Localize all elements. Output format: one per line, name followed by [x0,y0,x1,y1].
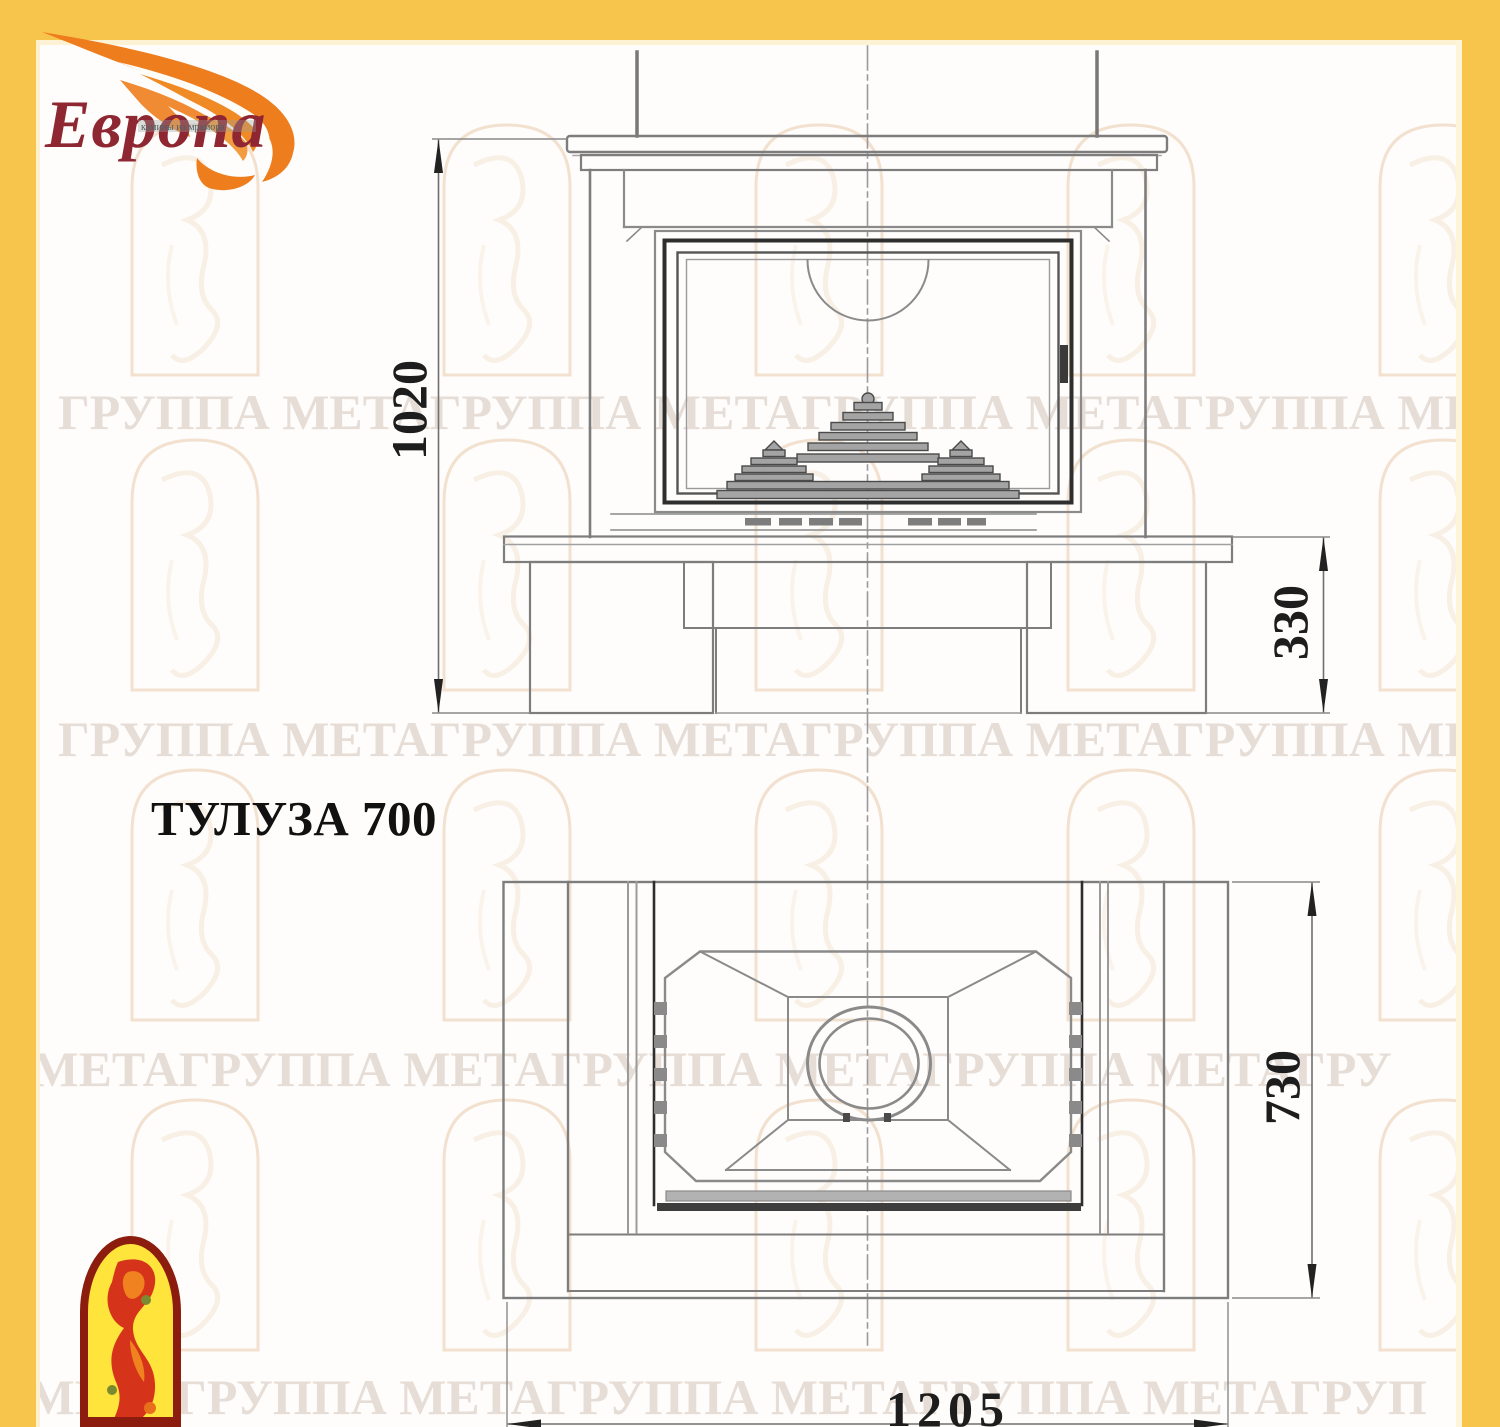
svg-text:ППА МЕТАГРУППА МЕТАГРУППА МЕТА: ППА МЕТАГРУППА МЕТАГРУППА МЕТАГРУППА МЕТ… [0,1041,1392,1097]
svg-text:ГРУППА МЕТАГРУППА МЕТАГРУППА М: ГРУППА МЕТАГРУППА МЕТАГРУППА МЕТАГРУППА … [58,384,1500,440]
svg-text:730: 730 [1254,1050,1310,1125]
svg-text:камины из мрамора: камины из мрамора [141,122,225,133]
svg-text:ПА МЕТАГРУППА МЕТАГРУППА МЕТАГ: ПА МЕТАГРУППА МЕТАГРУППА МЕТАГРУППА МЕТА… [0,1369,1427,1425]
svg-text:1205: 1205 [886,1381,1010,1427]
svg-text:1020: 1020 [381,360,437,460]
svg-text:ТУЛУЗА 700: ТУЛУЗА 700 [151,791,437,846]
svg-text:ГРУППА МЕТАГРУППА МЕТАГРУППА М: ГРУППА МЕТАГРУППА МЕТАГРУППА МЕТАГРУППА … [58,711,1500,767]
svg-text:330: 330 [1262,585,1318,660]
